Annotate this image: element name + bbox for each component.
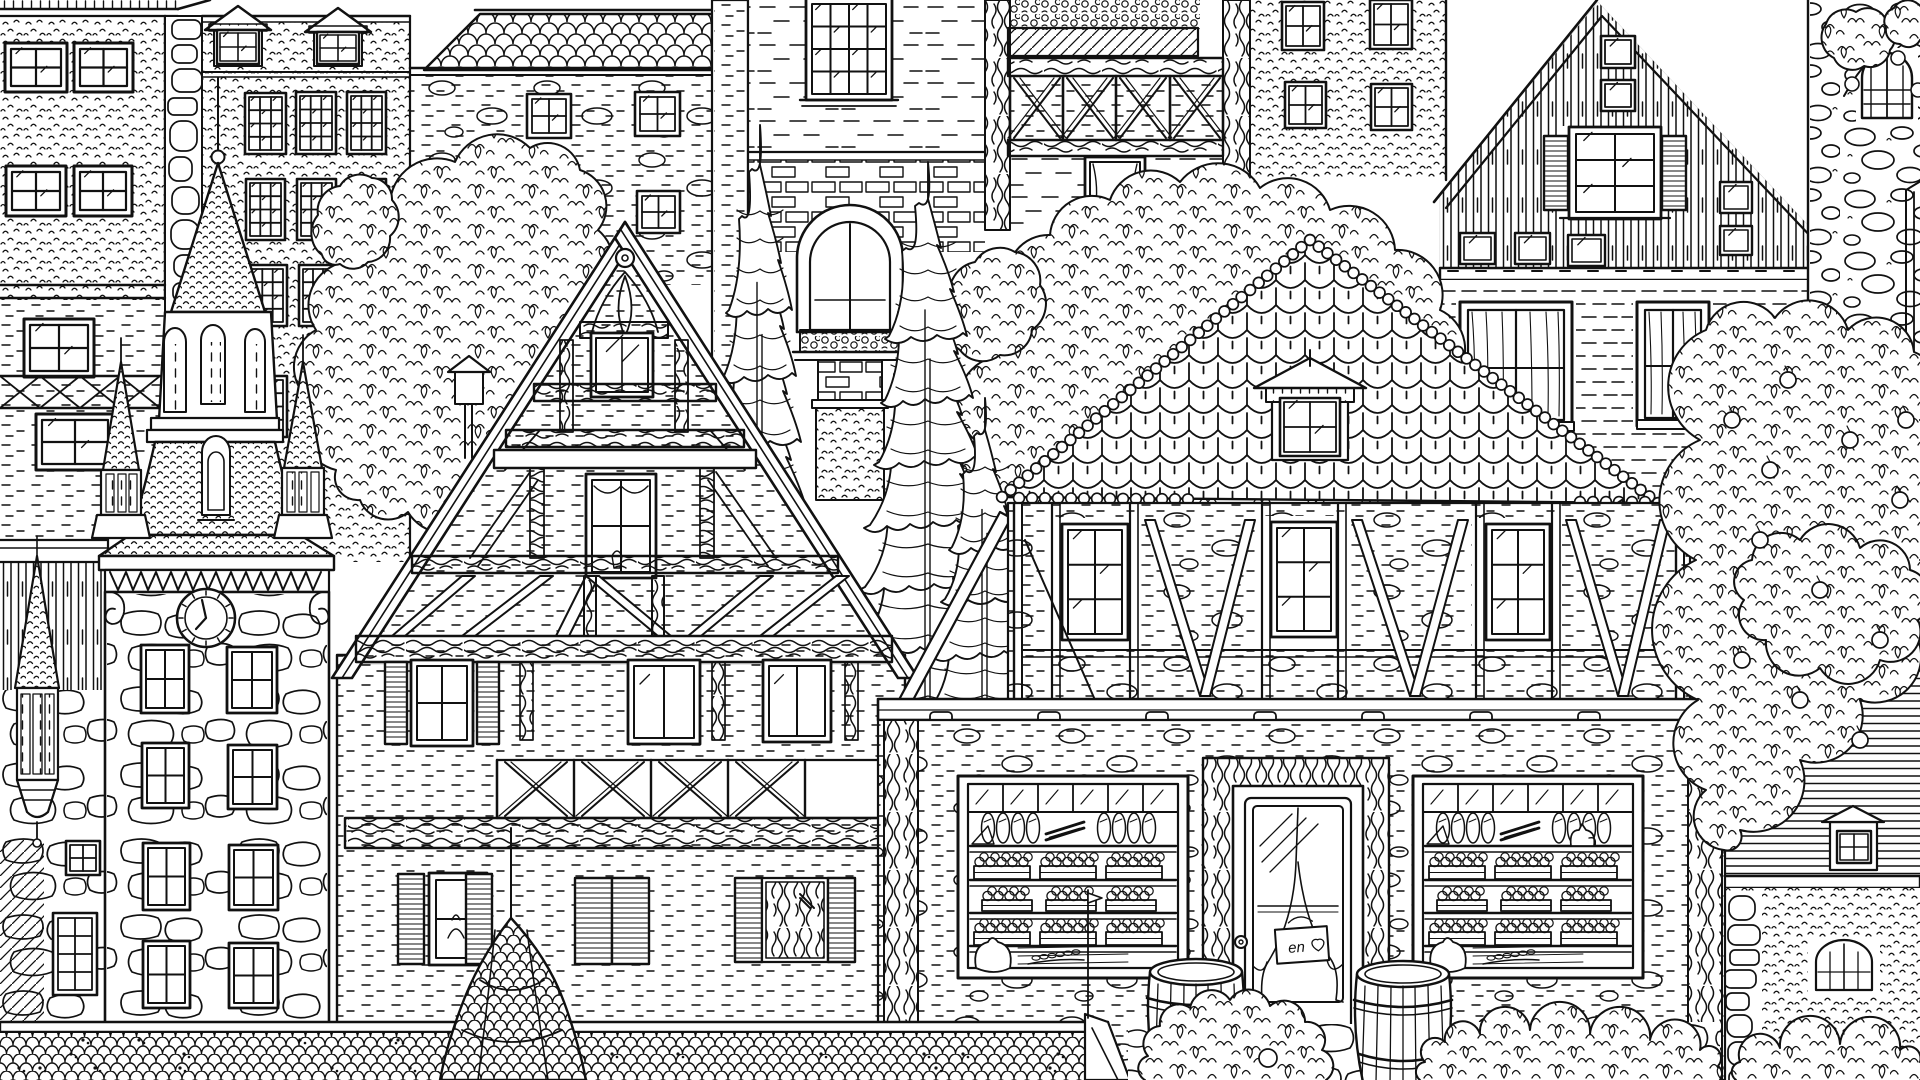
svg-text:en: en — [1288, 939, 1306, 957]
